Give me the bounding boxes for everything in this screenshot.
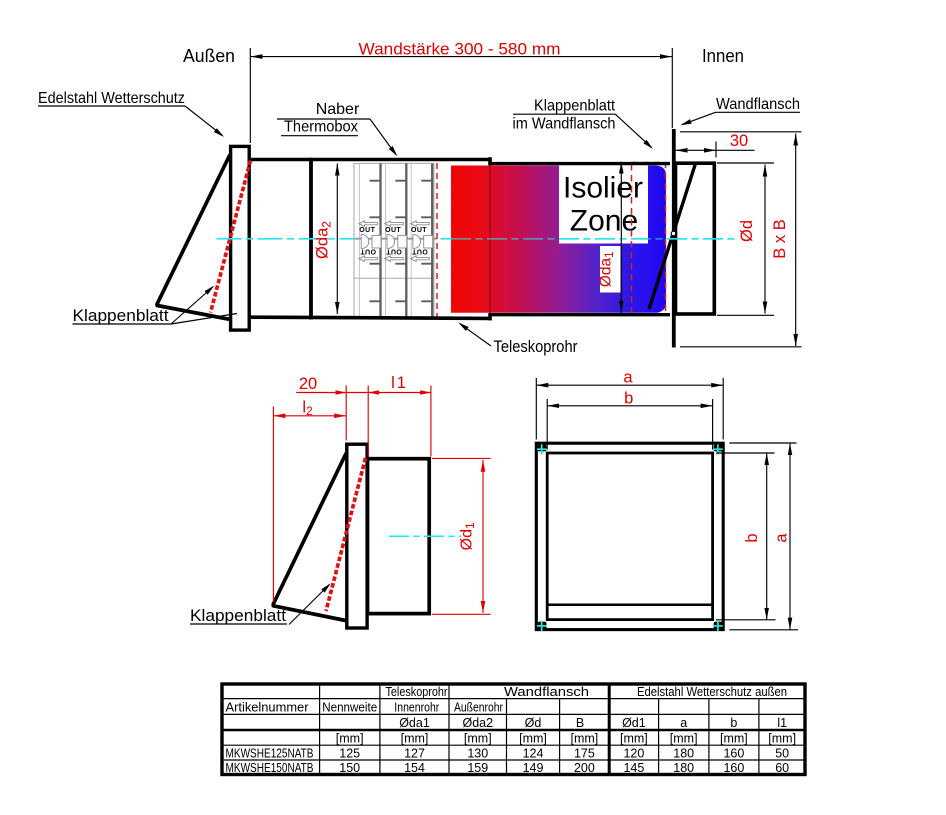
svg-text:[mm]: [mm] bbox=[464, 732, 492, 746]
svg-text:180: 180 bbox=[673, 761, 694, 775]
svg-text:[mm]: [mm] bbox=[620, 732, 648, 746]
svg-text:Ød: Ød bbox=[525, 716, 542, 730]
svg-text:[mm]: [mm] bbox=[519, 732, 547, 746]
svg-text:Naber: Naber bbox=[316, 101, 360, 118]
svg-text:Øda2: Øda2 bbox=[314, 221, 334, 259]
svg-text:[mm]: [mm] bbox=[720, 732, 748, 746]
svg-text:B x B: B x B bbox=[771, 219, 789, 258]
svg-text:Ød1: Ød1 bbox=[622, 716, 646, 730]
svg-text:154: 154 bbox=[404, 761, 425, 775]
svg-text:Wandflansch: Wandflansch bbox=[504, 685, 589, 699]
svg-text:Edelstahl Wetterschutz außen: Edelstahl Wetterschutz außen bbox=[637, 685, 787, 699]
svg-text:Thermobox: Thermobox bbox=[284, 119, 358, 136]
svg-text:160: 160 bbox=[723, 761, 744, 775]
svg-text:Klappenblatt: Klappenblatt bbox=[534, 98, 615, 115]
svg-text:Klappenblatt: Klappenblatt bbox=[190, 607, 286, 625]
svg-text:OUT: OUT bbox=[360, 247, 376, 254]
svg-text:[mm]: [mm] bbox=[401, 732, 429, 746]
svg-text:Innenrohr: Innenrohr bbox=[394, 701, 439, 715]
svg-text:a: a bbox=[623, 369, 633, 387]
svg-text:Teleskoprohr: Teleskoprohr bbox=[386, 685, 448, 699]
svg-text:MKWSHE125NATB: MKWSHE125NATB bbox=[226, 747, 314, 761]
svg-text:l1: l1 bbox=[777, 716, 787, 730]
svg-text:[mm]: [mm] bbox=[571, 732, 599, 746]
svg-text:l2: l2 bbox=[302, 399, 313, 419]
svg-text:Ød1: Ød1 bbox=[459, 522, 478, 550]
svg-text:Ød: Ød bbox=[738, 220, 756, 242]
svg-text:125: 125 bbox=[339, 747, 360, 761]
svg-text:124: 124 bbox=[523, 747, 544, 761]
svg-text:Wandstärke 300 - 580 mm: Wandstärke 300 - 580 mm bbox=[359, 40, 561, 59]
svg-text:Artikelnummer: Artikelnummer bbox=[226, 701, 309, 715]
svg-text:OUT: OUT bbox=[359, 227, 375, 234]
svg-text:160: 160 bbox=[723, 747, 744, 761]
svg-text:60: 60 bbox=[775, 761, 789, 775]
svg-text:Außen: Außen bbox=[183, 46, 235, 66]
svg-text:20: 20 bbox=[299, 375, 317, 393]
svg-text:a: a bbox=[773, 533, 791, 543]
svg-text:[mm]: [mm] bbox=[670, 732, 698, 746]
svg-text:im Wandflansch: im Wandflansch bbox=[513, 116, 616, 133]
svg-text:120: 120 bbox=[623, 747, 644, 761]
svg-text:a: a bbox=[680, 716, 687, 730]
svg-text:200: 200 bbox=[574, 761, 595, 775]
svg-text:b: b bbox=[624, 389, 633, 407]
svg-text:149: 149 bbox=[523, 761, 544, 775]
svg-text:180: 180 bbox=[673, 747, 694, 761]
svg-text:Øda2: Øda2 bbox=[463, 716, 494, 730]
svg-text:Nennweite: Nennweite bbox=[322, 701, 377, 715]
svg-text:Außenrohr: Außenrohr bbox=[454, 701, 503, 715]
svg-text:b: b bbox=[743, 533, 761, 542]
svg-text:50: 50 bbox=[775, 747, 789, 761]
svg-text:Klappenblatt: Klappenblatt bbox=[73, 307, 169, 325]
svg-text:B: B bbox=[576, 716, 584, 730]
svg-text:Teleskoprohr: Teleskoprohr bbox=[494, 338, 578, 356]
svg-text:Wandflansch: Wandflansch bbox=[716, 96, 800, 113]
svg-text:[mm]: [mm] bbox=[336, 732, 364, 746]
svg-text:Innen: Innen bbox=[702, 46, 744, 66]
svg-text:[mm]: [mm] bbox=[768, 732, 796, 746]
svg-text:b: b bbox=[730, 716, 737, 730]
svg-text:l1: l1 bbox=[391, 374, 408, 392]
svg-text:MKWSHE150NATB: MKWSHE150NATB bbox=[226, 761, 314, 775]
svg-text:159: 159 bbox=[467, 761, 488, 775]
svg-text:Edelstahl Wetterschutz: Edelstahl Wetterschutz bbox=[38, 90, 185, 107]
svg-text:Zone: Zone bbox=[570, 205, 638, 238]
svg-text:175: 175 bbox=[574, 747, 595, 761]
svg-text:130: 130 bbox=[467, 747, 488, 761]
svg-text:Øda1: Øda1 bbox=[399, 716, 430, 730]
svg-text:150: 150 bbox=[339, 761, 360, 775]
svg-text:127: 127 bbox=[404, 747, 425, 761]
svg-text:30: 30 bbox=[730, 132, 748, 150]
svg-text:145: 145 bbox=[623, 761, 644, 775]
